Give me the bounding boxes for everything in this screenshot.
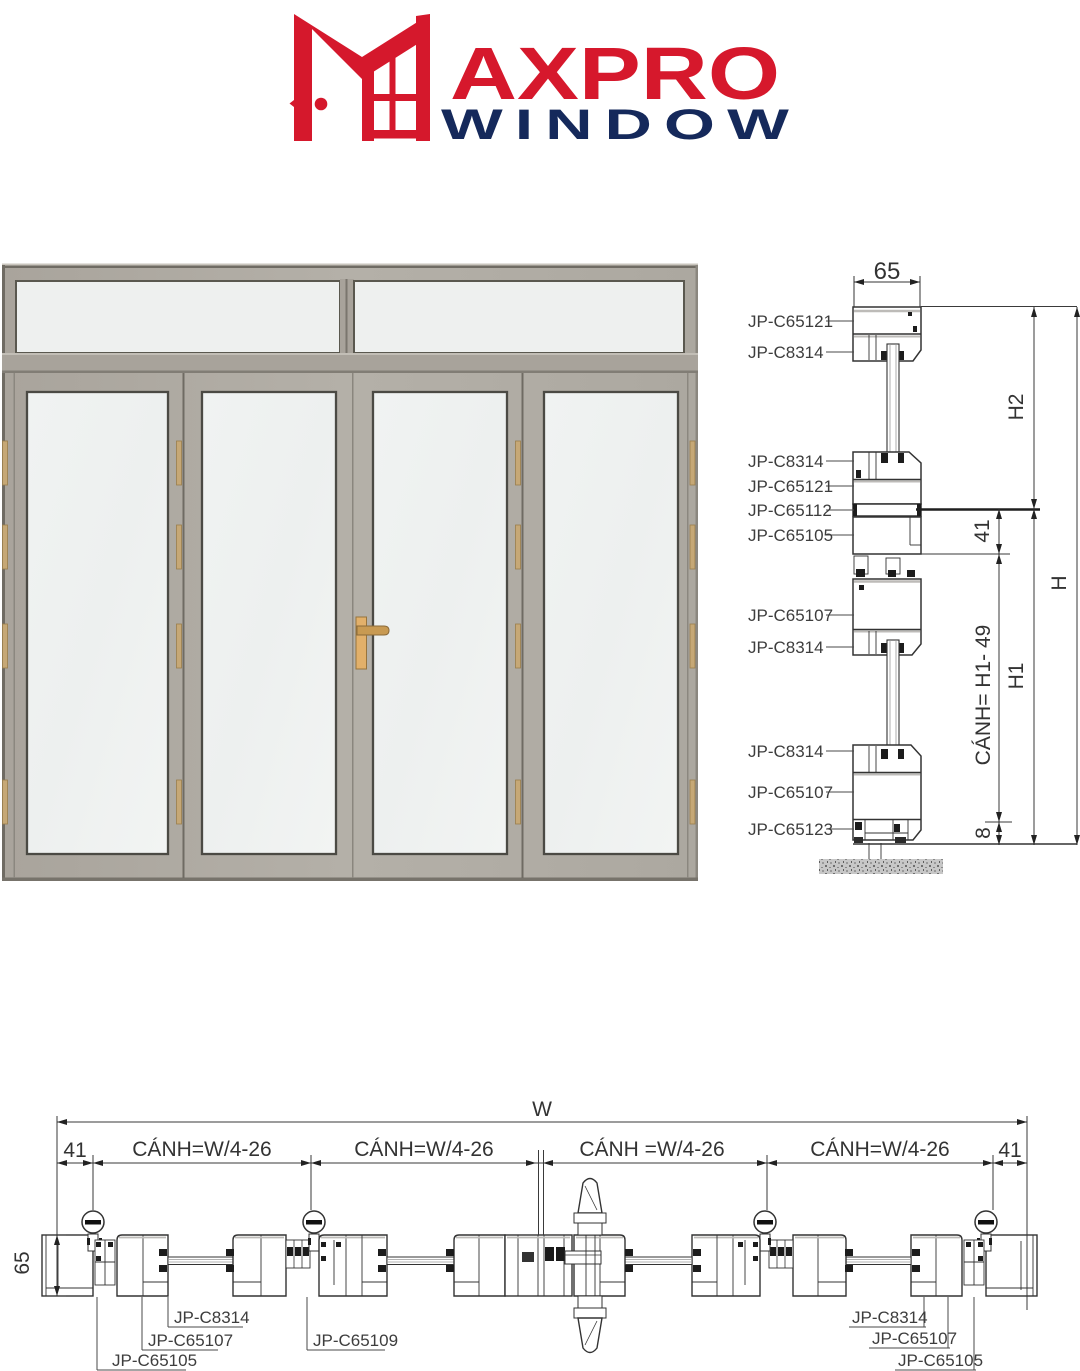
- svg-text:CÁNH= H1- 49: CÁNH= H1- 49: [972, 625, 995, 766]
- svg-text:JP-C65107: JP-C65107: [748, 606, 833, 625]
- svg-text:JP-C65105: JP-C65105: [112, 1351, 197, 1370]
- svg-text:H: H: [1048, 575, 1071, 590]
- svg-text:H1: H1: [1005, 663, 1028, 690]
- svg-text:W: W: [532, 1098, 552, 1121]
- svg-text:41: 41: [971, 519, 994, 542]
- svg-text:65: 65: [11, 1251, 34, 1274]
- svg-text:JP-C65109: JP-C65109: [313, 1331, 398, 1350]
- svg-text:65: 65: [874, 258, 901, 285]
- svg-text:JP-C8314: JP-C8314: [174, 1308, 250, 1327]
- svg-text:8: 8: [972, 827, 995, 839]
- svg-text:JP-C8314: JP-C8314: [852, 1308, 928, 1327]
- svg-text:41: 41: [998, 1139, 1021, 1162]
- svg-text:CÁNH=W/4-26: CÁNH=W/4-26: [132, 1138, 271, 1161]
- svg-text:JP-C65123: JP-C65123: [748, 820, 833, 839]
- svg-text:WINDOW: WINDOW: [441, 101, 801, 149]
- svg-text:CÁNH =W/4-26: CÁNH =W/4-26: [579, 1138, 724, 1161]
- svg-text:JP-C8314: JP-C8314: [748, 742, 824, 761]
- svg-text:JP-C65121: JP-C65121: [748, 312, 833, 331]
- svg-text:JP-C65105: JP-C65105: [898, 1351, 983, 1370]
- svg-text:JP-C65121: JP-C65121: [748, 477, 833, 496]
- svg-text:CÁNH=W/4-26: CÁNH=W/4-26: [810, 1138, 949, 1161]
- svg-text:JP-C8314: JP-C8314: [748, 343, 824, 362]
- svg-text:JP-C65107: JP-C65107: [872, 1329, 957, 1348]
- svg-text:41: 41: [63, 1139, 86, 1162]
- svg-text:JP-C8314: JP-C8314: [748, 452, 824, 471]
- svg-text:JP-C65112: JP-C65112: [748, 501, 832, 520]
- svg-text:JP-C8314: JP-C8314: [748, 638, 824, 657]
- svg-text:JP-C65107: JP-C65107: [148, 1331, 233, 1350]
- svg-text:JP-C65107: JP-C65107: [748, 783, 833, 802]
- svg-text:JP-C65105: JP-C65105: [748, 526, 833, 545]
- svg-text:H2: H2: [1005, 394, 1028, 421]
- svg-text:CÁNH=W/4-26: CÁNH=W/4-26: [354, 1138, 493, 1161]
